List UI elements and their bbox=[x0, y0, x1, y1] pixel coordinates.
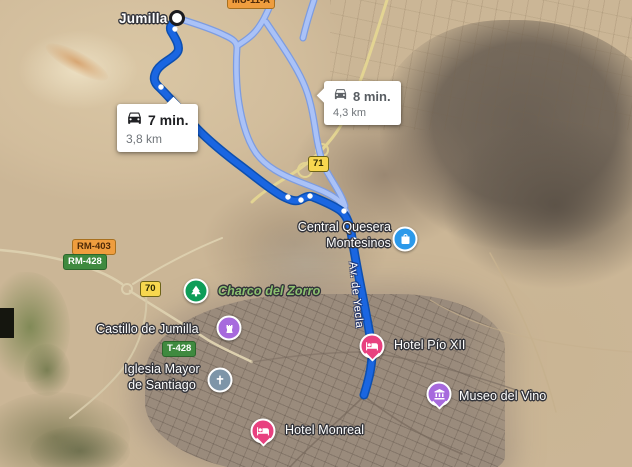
route-duration: 7 min. bbox=[148, 112, 188, 128]
t428-road bbox=[70, 296, 146, 418]
castle-icon[interactable] bbox=[217, 316, 242, 341]
poi-label-hotel-monreal[interactable]: Hotel Monreal bbox=[285, 423, 364, 437]
road-shield-rm-403: RM-403 bbox=[72, 239, 116, 255]
poi-label-charco-del-zorro[interactable]: Charco del Zorro bbox=[218, 284, 320, 298]
satellite-map-canvas[interactable]: Av. de Yecla Jumilla MU-11-A 71 RM-403 R… bbox=[0, 0, 632, 467]
roundabout bbox=[122, 284, 132, 294]
road-shield-mu-11-a: MU-11-A bbox=[227, 0, 275, 9]
poi-label-line: Iglesia Mayor bbox=[124, 362, 200, 376]
car-icon bbox=[333, 86, 348, 106]
poi-label-line: Montesinos bbox=[326, 236, 391, 250]
shopping-bag-icon[interactable] bbox=[393, 227, 418, 252]
alternate-route-tooltip[interactable]: 8 min. 4,3 km bbox=[324, 81, 401, 125]
road-shield-71: 71 bbox=[308, 156, 329, 172]
poi-label-museo-del-vino[interactable]: Museo del Vino bbox=[459, 389, 546, 403]
bed-icon[interactable] bbox=[360, 334, 385, 359]
primary-route-group bbox=[154, 18, 372, 395]
route-duration: 8 min. bbox=[353, 89, 391, 104]
church-cross-icon[interactable] bbox=[208, 368, 233, 393]
town-street bbox=[252, 352, 364, 362]
poi-label-line: de Santiago bbox=[128, 378, 196, 392]
route-distance: 4,3 km bbox=[333, 107, 391, 119]
car-icon bbox=[126, 109, 143, 131]
local-road bbox=[133, 238, 222, 284]
poi-label-castillo-de-jumilla[interactable]: Castillo de Jumilla bbox=[96, 322, 199, 336]
town-label-jumilla[interactable]: Jumilla bbox=[119, 11, 168, 26]
poi-label-hotel-pio-xii[interactable]: Hotel Pío XII bbox=[394, 338, 465, 352]
tree-icon[interactable] bbox=[184, 279, 209, 304]
destination-marker[interactable] bbox=[169, 10, 185, 26]
road-shield-70: 70 bbox=[140, 281, 161, 297]
museum-icon[interactable] bbox=[427, 382, 452, 407]
primary-route[interactable] bbox=[154, 18, 372, 395]
poi-label-line: Central Quesera bbox=[298, 220, 391, 234]
poi-label-central-quesera[interactable]: Central Quesera Montesinos bbox=[280, 220, 391, 251]
road-shield-t-428: T-428 bbox=[162, 341, 196, 357]
poi-label-iglesia-mayor[interactable]: Iglesia Mayor de Santiago bbox=[112, 362, 212, 393]
bed-icon[interactable] bbox=[251, 419, 276, 444]
road-shield-rm-428: RM-428 bbox=[63, 254, 107, 270]
primary-route-tooltip[interactable]: 7 min. 3,8 km bbox=[117, 104, 198, 152]
route-distance: 3,8 km bbox=[126, 132, 188, 146]
town-street bbox=[364, 396, 462, 454]
